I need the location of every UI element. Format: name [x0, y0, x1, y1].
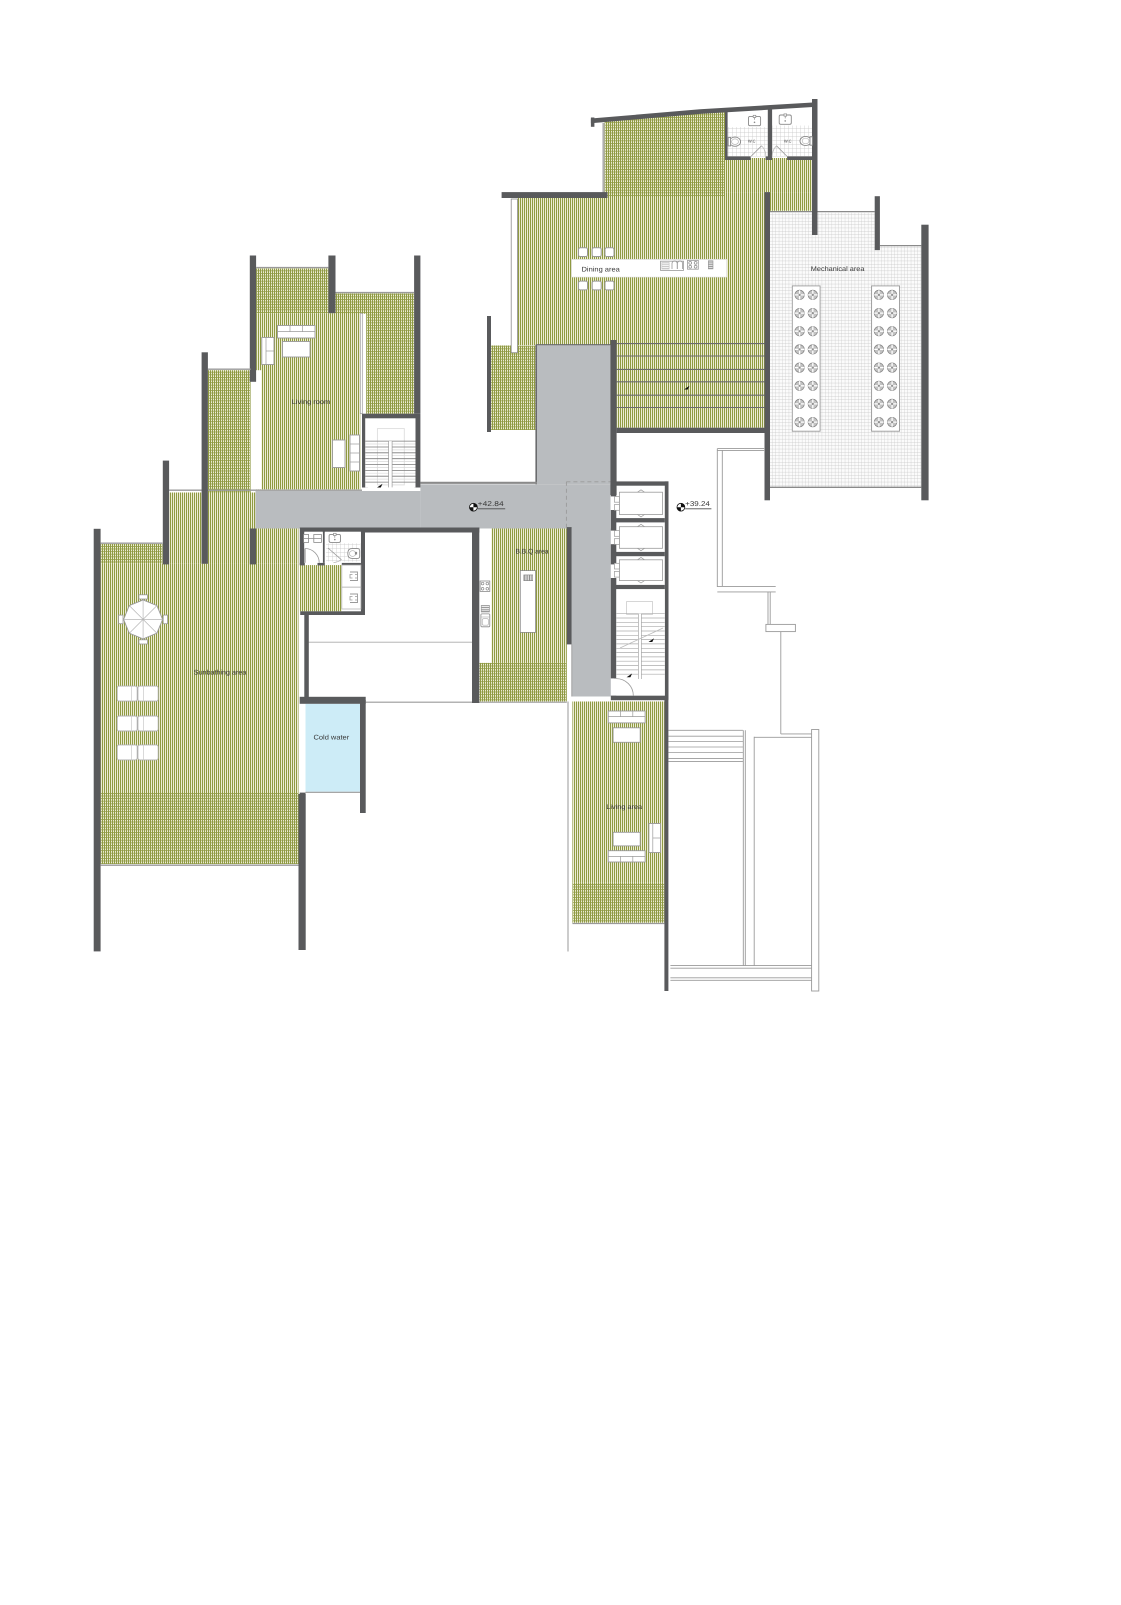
svg-text:Sunbathing area: Sunbathing area: [194, 670, 247, 677]
svg-text:Dining area: Dining area: [582, 267, 621, 274]
svg-text:Mechanical area: Mechanical area: [811, 266, 865, 273]
svg-text:B.B.Q area: B.B.Q area: [516, 549, 549, 556]
svg-text:W.C: W.C: [748, 139, 756, 144]
svg-text:W.C: W.C: [784, 139, 792, 144]
svg-text:+39.24: +39.24: [685, 501, 710, 508]
svg-text:+42.84: +42.84: [478, 501, 504, 508]
svg-text:Living area: Living area: [606, 804, 642, 811]
svg-text:Cold water: Cold water: [314, 735, 350, 742]
svg-text:Living room: Living room: [292, 399, 331, 406]
